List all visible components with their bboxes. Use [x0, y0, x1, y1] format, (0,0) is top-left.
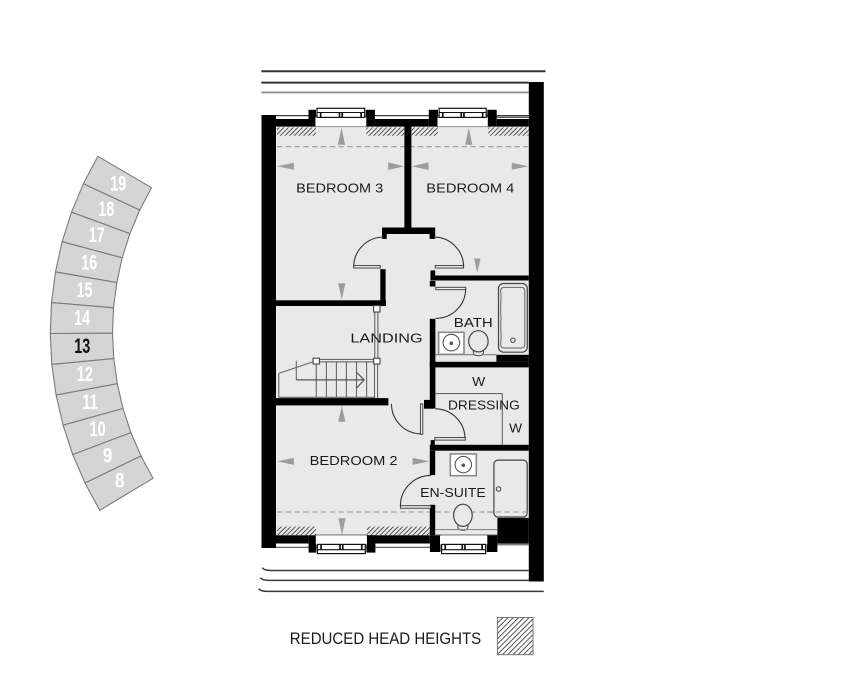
svg-text:BATH: BATH	[454, 315, 493, 330]
svg-text:15: 15	[77, 279, 93, 302]
svg-text:DRESSING: DRESSING	[448, 398, 520, 413]
svg-text:10: 10	[90, 418, 106, 441]
svg-text:11: 11	[82, 391, 98, 414]
svg-text:EN-SUITE: EN-SUITE	[420, 485, 486, 500]
svg-text:16: 16	[81, 251, 97, 274]
svg-text:17: 17	[89, 224, 105, 247]
svg-text:9: 9	[103, 444, 113, 467]
svg-text:13: 13	[74, 335, 90, 358]
svg-text:19: 19	[110, 172, 126, 195]
svg-text:BEDROOM 2: BEDROOM 2	[310, 453, 398, 468]
svg-text:8: 8	[115, 470, 125, 493]
svg-text:14: 14	[74, 307, 90, 330]
svg-text:BEDROOM 4: BEDROOM 4	[426, 180, 514, 195]
svg-text:W: W	[472, 374, 486, 389]
svg-text:18: 18	[98, 198, 114, 221]
svg-text:12: 12	[77, 363, 93, 386]
svg-text:BEDROOM 3: BEDROOM 3	[296, 180, 383, 195]
svg-text:W: W	[509, 421, 523, 436]
svg-text:REDUCED HEAD HEIGHTS: REDUCED HEAD HEIGHTS	[290, 630, 481, 648]
svg-text:LANDING: LANDING	[350, 330, 422, 345]
